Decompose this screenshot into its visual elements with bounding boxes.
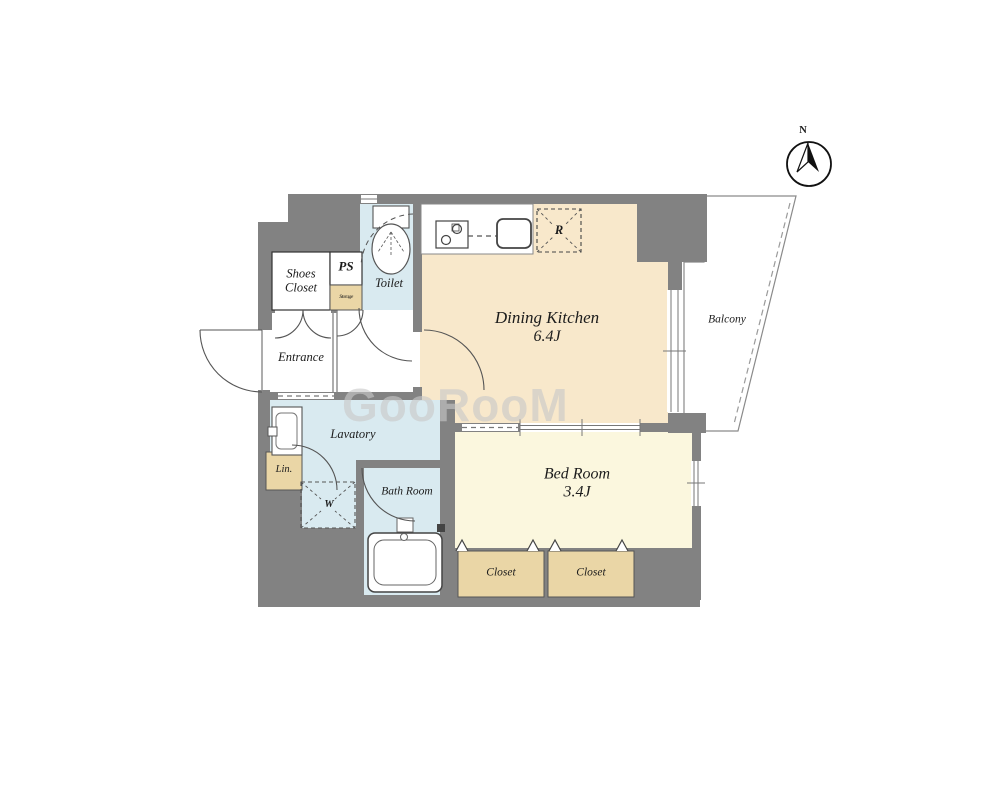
dining-kitchen-label: Dining Kitchen 6.4J [495,308,599,346]
pipe-space-label: PS [338,260,353,275]
storage-label: Storage [339,294,353,300]
balcony-label: Balcony [708,313,746,326]
shoes-closet-door-left-arc [275,310,303,338]
toilet-door-arc [359,308,412,361]
washer-label: W [324,499,333,511]
lavatory-label: Lavatory [330,427,375,441]
shoes-closet-line2: Closet [285,281,317,295]
dining-kitchen-name: Dining Kitchen [495,308,599,328]
refrigerator-label: R [555,223,563,237]
dining-kitchen-size: 6.4J [495,328,599,346]
shoes-closet-line1: Shoes [285,267,317,281]
entrance-label: Entrance [278,350,324,364]
washer-area-floor [302,460,356,528]
closet-left-label: Closet [486,566,515,579]
shoes-closet-label: Shoes Closet [285,267,317,296]
compass-icon [787,142,831,186]
linen-label: Lin. [276,464,293,476]
closet-right-label: Closet [576,566,605,579]
sink-icon [497,219,531,248]
bath-room-label: Bath Room [381,485,432,498]
kitchen-counter [421,204,533,254]
toilet-label: Toilet [375,276,403,290]
bath-faucet-icon [437,524,445,532]
floor-plan-page: GooRooM Dining Kitchen 6.4J Bed Room 3.4… [0,0,999,801]
bed-room-label: Bed Room 3.4J [544,466,610,503]
compass-north-label: N [799,125,807,137]
floor-plan-drawing [0,0,999,801]
bed-room-name: Bed Room [544,466,610,484]
shoes-closet-door-right-arc [303,310,331,338]
washbasin-icon [268,407,302,455]
entrance-door-arc [200,330,262,392]
bed-room-size: 3.4J [544,484,610,502]
